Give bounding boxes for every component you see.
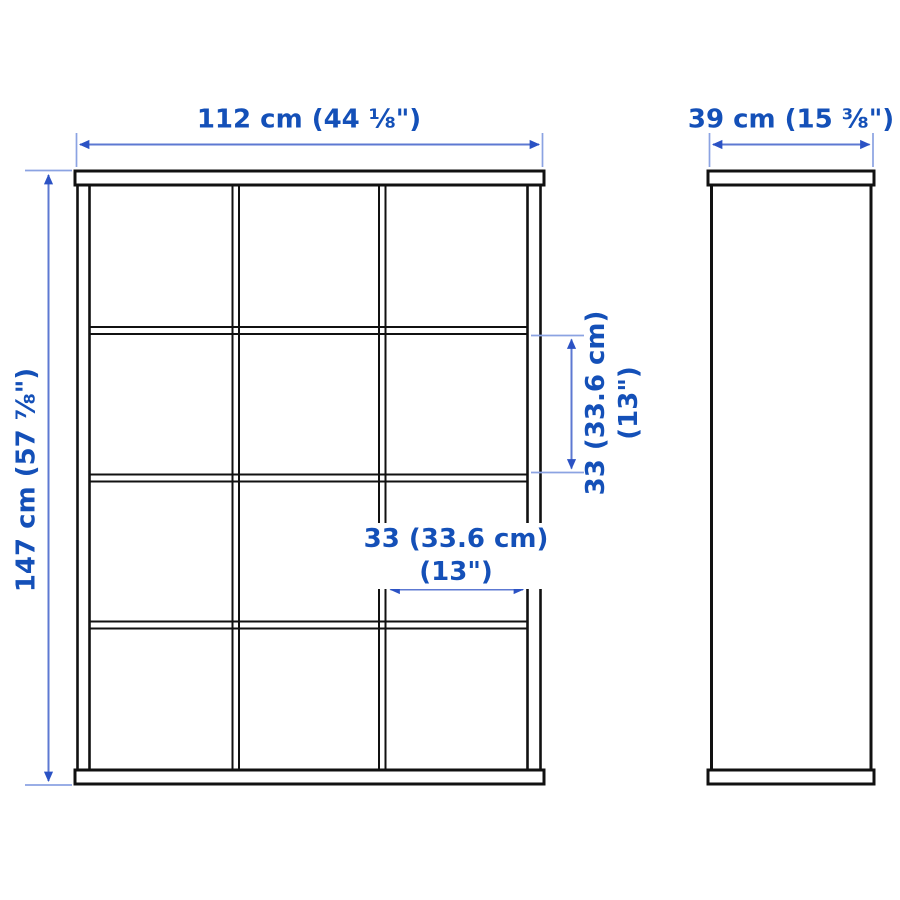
- front-vertical-divider-2: [379, 185, 386, 770]
- side-top-board: [708, 171, 874, 185]
- product-dimension-diagram: 112 cm (44 ⅛") 39 cm (15 ⅜") 147 cm (57 …: [0, 0, 900, 900]
- cube-height-dimension: [531, 336, 584, 473]
- cube-width-label-line2: (13"): [364, 556, 549, 589]
- depth-dimension: [710, 133, 874, 167]
- width-dimension-label: 112 cm (44 ⅛"): [197, 104, 421, 137]
- cube-width-dimension-label: 33 (33.6 cm) (13"): [358, 523, 555, 589]
- front-shelf-3: [90, 622, 529, 629]
- shelf-side-view: [708, 171, 874, 784]
- depth-dimension-label: 39 cm (15 ⅜"): [688, 104, 894, 137]
- front-vertical-divider-1: [233, 185, 240, 770]
- cube-height-dimension-label: 33 (33.6 cm) (13"): [580, 311, 646, 496]
- cube-height-label-line2: (13"): [613, 311, 646, 496]
- shelf-front-view: [75, 171, 544, 784]
- front-bottom-board: [75, 770, 544, 784]
- width-dimension: [77, 133, 543, 167]
- front-shelf-2: [90, 475, 529, 482]
- front-shelf-1: [90, 327, 529, 334]
- front-left-side-panel: [78, 185, 90, 770]
- cube-width-label-line1: 33 (33.6 cm): [364, 523, 549, 556]
- front-right-side-panel: [528, 185, 541, 770]
- side-body-panel: [712, 185, 872, 770]
- cube-height-label-line1: 33 (33.6 cm): [580, 311, 613, 496]
- front-top-board: [75, 171, 544, 185]
- height-dimension-label: 147 cm (57 ⅞"): [11, 368, 44, 592]
- side-bottom-board: [708, 770, 874, 784]
